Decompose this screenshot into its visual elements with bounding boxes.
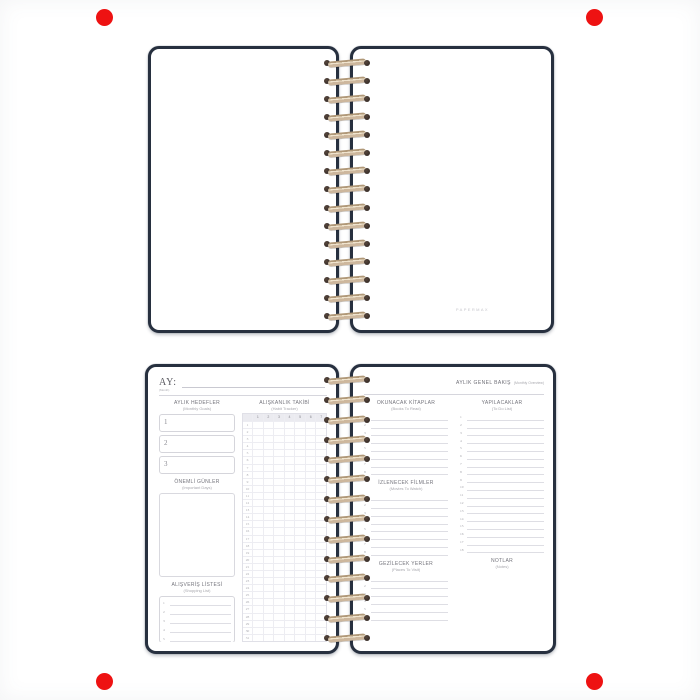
row-line [467,513,544,514]
coil-hole-right [364,377,370,383]
spiral-coil [321,222,373,230]
red-marker-bottom-left [96,673,113,690]
habit-row-number: 25 [243,592,252,598]
habit-cell [284,536,295,542]
habit-cell [305,486,316,492]
habit-cell [284,557,295,563]
month-field: AY: (Month) [159,375,327,392]
habit-cell [294,635,305,641]
habit-cell [284,450,295,456]
list-row: 8 [364,548,448,556]
habit-cell [273,585,284,591]
coil-hole-right [364,96,370,102]
list-row: 6 [460,452,544,460]
list-row: 5 [163,633,231,642]
habit-cell [305,543,316,549]
habit-cell [294,578,305,584]
habit-cell [284,479,295,485]
row-number: 9 [460,479,467,484]
habit-row-number: 28 [243,614,252,620]
coil-hole-right [364,476,370,482]
row-line [371,524,448,525]
row-line [170,632,231,633]
spiral-coil [321,59,373,67]
coil-wire [328,311,366,320]
habit-cell [252,635,263,641]
red-marker-top-left [96,9,113,26]
todo-header: YAPILACAKLAR (To Do List) [460,400,544,411]
habit-cell [294,614,305,620]
habit-cell [294,564,305,570]
habit-cell [273,550,284,556]
coil-wire [328,494,366,503]
month-label-block: AY: (Month) [159,377,177,392]
coil-hole-right [364,496,370,502]
list-row: 5 [364,525,448,533]
overview-header: AYLIK GENEL BAKIŞ (Monthly Overview) [364,375,544,391]
habit-row-number: 2 [243,429,252,435]
row-line [371,555,448,556]
habit-cell [305,592,316,598]
goal-box: 2 [159,435,235,453]
habit-cell [305,564,316,570]
places-rows: 123456 [364,574,448,621]
habit-cell [263,465,274,471]
list-row: 6 [364,532,448,540]
habit-cell [252,564,263,570]
habit-grid-row: 30 [243,627,326,634]
habit-row-number: 19 [243,550,252,556]
habit-cell [294,479,305,485]
important-days-box [159,493,235,577]
coil-wire [328,375,366,384]
spiral-coil [321,475,373,483]
row-line [371,467,448,468]
habit-cell [294,429,305,435]
habit-cell [273,564,284,570]
habit-cell [305,429,316,435]
notes-subtitle: (Notes) [460,564,544,569]
habit-corner-cell [243,414,252,421]
places-subtitle: (Places To Visit) [364,567,448,572]
row-line [371,539,448,540]
habit-cell [263,500,274,506]
habit-row-number: 29 [243,621,252,627]
coil-hole-right [364,313,370,319]
habit-grid-row: 15 [243,520,326,527]
spiral-coil [321,113,373,121]
row-line [467,467,544,468]
row-line [467,545,544,546]
habit-cell [273,578,284,584]
row-number: 12 [460,502,467,507]
habit-grid-row: 5 [243,449,326,456]
habit-grid-row: 7 [243,464,326,471]
row-line [371,459,448,460]
list-row: 8 [364,468,448,476]
habit-row-number: 14 [243,514,252,520]
list-row: 7 [364,460,448,468]
row-number: 1 [163,602,170,607]
habit-cell [294,571,305,577]
habit-cell [294,528,305,534]
spiral-coil [321,455,373,463]
habit-row-number: 16 [243,528,252,534]
row-number: 2 [163,611,170,616]
list-row: 2 [460,421,544,429]
habit-cell [273,543,284,549]
spiral-coil [321,258,373,266]
month-fill-line [182,387,325,388]
habit-cell [305,599,316,605]
habit-row-number: 5 [243,450,252,456]
list-row: 6 [364,613,448,621]
row-line [371,620,448,621]
habit-cell [305,457,316,463]
coil-hole-right [364,437,370,443]
habit-cell [305,614,316,620]
coil-wire [328,475,366,484]
habit-cell [284,571,295,577]
spiral-coil [321,376,373,384]
notes-header: NOTLAR (Notes) [460,558,544,569]
habit-day-header: 1 [252,414,263,421]
habit-grid-row: 11 [243,492,326,499]
row-line [170,641,231,642]
planner-left-page: AY: (Month) AYLIK HEDEFLER (Monthly Goal… [145,364,339,654]
spiral-binding-bottom [321,364,373,654]
habit-cell [263,606,274,612]
spiral-coil [321,634,373,642]
habit-cell [284,500,295,506]
row-line [170,605,231,606]
product-photo: PAPERMAX AY: (Month) AYLIK HEDEFLER (Mon… [0,0,700,700]
habit-cell [294,486,305,492]
habit-cell [252,422,263,428]
coil-hole-right [364,186,370,192]
spiral-coil [321,396,373,404]
movies-subtitle: (Movies To Watch) [364,486,448,491]
coil-wire [328,185,366,194]
list-row: 4 [163,624,231,633]
habit-grid-row: 2 [243,428,326,435]
spiral-coil [321,149,373,157]
habit-header: ALIŞKANLIK TAKİBİ (Habit Tracker) [242,400,327,411]
row-line [467,420,544,421]
planner-left-content: AY: (Month) AYLIK HEDEFLER (Monthly Goal… [159,375,327,642]
coil-wire [328,395,366,404]
coil-hole-right [364,78,370,84]
row-line [467,482,544,483]
habit-cell [273,500,284,506]
habit-cell [284,599,295,605]
coil-hole-right [364,168,370,174]
goal-number: 2 [164,439,168,447]
important-days-subtitle: (Important Days) [159,485,235,490]
habit-cell [252,457,263,463]
list-row: 15 [460,522,544,530]
row-line [467,428,544,429]
row-number: 6 [460,455,467,460]
list-row: 5 [364,605,448,613]
habit-row-number: 12 [243,500,252,506]
habit-grid-row: 20 [243,556,326,563]
row-number: 18 [460,549,467,554]
habit-cell [284,521,295,527]
coil-hole-right [364,241,370,247]
habit-grid-row: 25 [243,591,326,598]
lists-right-column: YAPILACAKLAR (To Do List) 12345678910111… [460,400,544,621]
habit-cell [284,543,295,549]
habit-row-number: 9 [243,479,252,485]
coil-wire [328,554,366,563]
habit-day-header: 5 [294,414,305,421]
habit-cell [273,528,284,534]
list-row: 4 [364,597,448,605]
habit-cell [305,585,316,591]
planner-right-content: AYLIK GENEL BAKIŞ (Monthly Overview) OKU… [364,375,544,642]
spiral-coil [321,276,373,284]
habit-cell [294,550,305,556]
habit-grid-row: 14 [243,513,326,520]
row-line [467,474,544,475]
habit-cell [263,635,274,641]
coil-wire [328,415,366,424]
coil-wire [328,221,366,230]
spiral-binding-top [321,46,373,333]
habit-cell [252,528,263,534]
habit-grid-row: 16 [243,527,326,534]
habit-cell [284,493,295,499]
habit-cell [294,621,305,627]
habit-grid-header: 1234567 [243,414,326,421]
habit-cell [273,614,284,620]
habit-cell [252,628,263,634]
coil-wire [328,113,366,122]
habit-cell [305,635,316,641]
habit-cell [273,628,284,634]
habit-cell [252,472,263,478]
coil-hole-right [364,516,370,522]
habit-cell [305,550,316,556]
month-sublabel: (Month) [159,388,177,392]
shopping-subtitle: (Shopping List) [159,588,235,593]
habit-cell [252,550,263,556]
habit-cell [305,571,316,577]
row-line [467,537,544,538]
goals-subtitle: (Monthly Goals) [159,406,235,411]
overview-divider [364,394,544,395]
habit-day-header: 3 [273,414,284,421]
goal-boxes: 123 [159,414,235,474]
coil-wire [328,275,366,284]
planner-right-page: AYLIK GENEL BAKIŞ (Monthly Overview) OKU… [350,364,556,654]
habit-row-number: 22 [243,571,252,577]
habit-cell [284,465,295,471]
todo-subtitle: (To Do List) [460,406,544,411]
list-row: 2 [364,501,448,509]
habit-cell [263,450,274,456]
row-number: 4 [163,629,170,634]
shopping-list-box: 12345 [159,596,235,642]
habit-cell [263,628,274,634]
habit-tracker-grid: 1234567123456789101112131415161718192021… [242,413,327,642]
habit-cell [294,507,305,513]
habit-cell [263,571,274,577]
habit-cell [252,599,263,605]
habit-cell [263,592,274,598]
row-line [170,614,231,615]
row-line [371,435,448,436]
goal-box: 3 [159,456,235,474]
habit-cell [273,521,284,527]
spiral-coil [321,312,373,320]
habit-cell [305,436,316,442]
spiral-coil [321,95,373,103]
row-line [467,506,544,507]
coil-hole-right [364,114,370,120]
habit-cell [305,521,316,527]
list-row: 14 [460,514,544,522]
coil-wire [328,76,366,85]
spiral-coil [321,535,373,543]
row-number: 7 [460,463,467,468]
list-row: 3 [364,429,448,437]
habit-cell [305,557,316,563]
planner-left-column: AYLIK HEDEFLER (Monthly Goals) 123 ÖNEML… [159,400,235,642]
habit-cell [305,443,316,449]
habit-grid-row: 19 [243,549,326,556]
row-number: 8 [460,471,467,476]
list-row: 5 [460,444,544,452]
habit-cell [294,628,305,634]
habit-cell [263,550,274,556]
blank-right-page: PAPERMAX [350,46,554,333]
habit-cell [284,585,295,591]
habit-cell [252,521,263,527]
spiral-coil [321,77,373,85]
habit-cell [252,500,263,506]
habit-cell [263,536,274,542]
habit-subtitle: (Habit Tracker) [242,406,327,411]
coil-wire [328,257,366,266]
goal-box: 1 [159,414,235,432]
habit-cell [294,514,305,520]
habit-row-number: 15 [243,521,252,527]
habit-grid-row: 3 [243,435,326,442]
list-row: 3 [364,509,448,517]
coil-wire [328,239,366,248]
red-marker-bottom-right [586,673,603,690]
coil-wire [328,594,366,603]
habit-cell [305,528,316,534]
habit-cell [252,621,263,627]
habit-cell [263,543,274,549]
habit-row-number: 1 [243,422,252,428]
habit-cell [294,436,305,442]
habit-cell [252,514,263,520]
row-line [467,521,544,522]
coil-wire [328,58,366,67]
habit-cell [252,585,263,591]
habit-row-number: 17 [243,536,252,542]
coil-wire [328,94,366,103]
habit-row-number: 13 [243,507,252,513]
habit-grid-row: 17 [243,535,326,542]
habit-cell [305,500,316,506]
habit-cell [284,457,295,463]
list-row: 7 [460,460,544,468]
list-row: 1 [364,413,448,421]
row-line [467,552,544,553]
habit-cell [273,493,284,499]
list-row: 9 [460,475,544,483]
habit-cell [263,621,274,627]
row-line [371,451,448,452]
habit-cell [294,465,305,471]
coil-wire [328,633,366,642]
habit-cell [284,614,295,620]
spiral-coil [321,614,373,622]
row-number: 15 [460,525,467,530]
habit-cell [305,472,316,478]
row-number: 2 [460,424,467,429]
habit-cell [263,436,274,442]
habit-cell [284,592,295,598]
habit-grid-row: 6 [243,456,326,463]
list-row: 3 [364,589,448,597]
habit-cell [263,614,274,620]
habit-grid-row: 18 [243,542,326,549]
habit-grid-row: 8 [243,471,326,478]
habit-cell [252,450,263,456]
row-line [170,623,231,624]
row-line [371,612,448,613]
habit-cell [263,457,274,463]
list-row: 5 [364,444,448,452]
list-row: 16 [460,530,544,538]
coil-wire [328,574,366,583]
habit-cell [263,443,274,449]
habit-grid-row: 28 [243,613,326,620]
list-row: 1 [364,574,448,582]
habit-cell [273,592,284,598]
habit-row-number: 11 [243,493,252,499]
spiral-coil [321,495,373,503]
coil-hole-right [364,277,370,283]
habit-cell [273,536,284,542]
habit-cell [294,472,305,478]
habit-tracker-column: ALIŞKANLIK TAKİBİ (Habit Tracker) 123456… [242,400,327,642]
habit-cell [284,621,295,627]
habit-cell [252,479,263,485]
habit-cell [252,557,263,563]
coil-wire [328,534,366,543]
habit-grid-row: 24 [243,584,326,591]
habit-row-number: 8 [243,472,252,478]
habit-cell [294,500,305,506]
habit-cell [294,599,305,605]
habit-cell [294,493,305,499]
places-header: GEZİLECEK YERLER (Places To Visit) [364,561,448,572]
habit-cell [263,521,274,527]
habit-cell [252,543,263,549]
habit-cell [273,436,284,442]
coil-wire [328,149,366,158]
list-row: 1 [364,493,448,501]
habit-cell [284,436,295,442]
habit-cell [273,465,284,471]
